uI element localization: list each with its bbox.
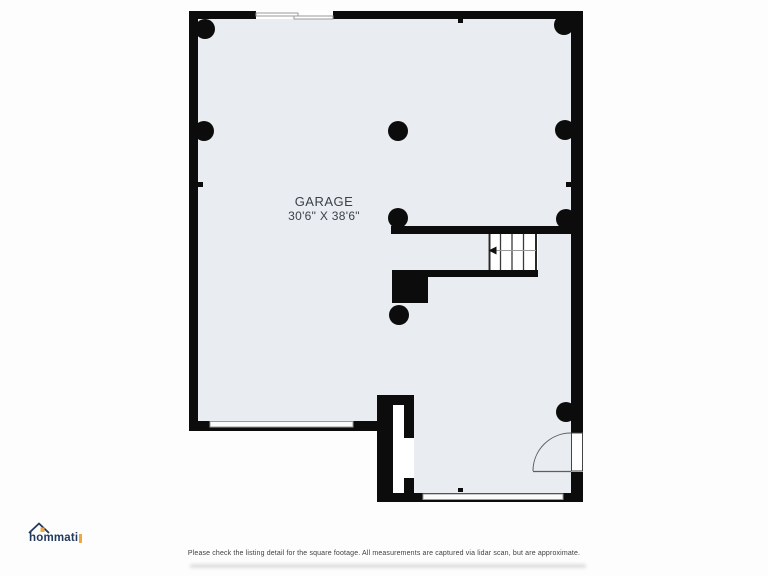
wall-segment xyxy=(189,11,198,431)
column-marker xyxy=(388,208,408,228)
top-wall-opening xyxy=(256,11,333,19)
scan-tick xyxy=(458,19,463,23)
window-marker xyxy=(294,16,333,19)
wall-segment xyxy=(189,11,256,19)
column-marker xyxy=(388,121,408,141)
staircase xyxy=(488,234,538,270)
garage-door-marker xyxy=(210,422,353,428)
column-marker xyxy=(389,305,409,325)
door-frame xyxy=(572,433,583,471)
structural-block xyxy=(392,270,428,303)
stairwell-wall xyxy=(428,270,538,277)
scan-tick xyxy=(198,182,203,187)
logo-accent-bar xyxy=(79,534,82,543)
stairwell-wall xyxy=(391,226,571,234)
column-marker xyxy=(555,120,575,140)
footer-disclaimer: Please check the listing detail for the … xyxy=(0,550,768,557)
floor-plan-page: GARAGE 30'6" X 38'6" hommati Please chec… xyxy=(0,0,768,576)
scan-tick xyxy=(566,182,571,187)
column-marker xyxy=(194,121,214,141)
logo-text: hommati xyxy=(29,533,78,544)
garage-floor xyxy=(198,19,571,421)
column-marker xyxy=(195,19,215,39)
wall-segment xyxy=(377,395,393,502)
column-marker xyxy=(556,209,576,229)
room-label: GARAGE xyxy=(295,194,354,209)
floor-plan: GARAGE 30'6" X 38'6" xyxy=(0,0,768,576)
wall-segment xyxy=(333,11,583,19)
garage-door-marker xyxy=(423,494,563,500)
scan-tick xyxy=(458,488,463,492)
wall-segment xyxy=(404,405,414,438)
wall-segment xyxy=(377,395,414,405)
hommati-logo: hommati xyxy=(28,522,86,548)
footer-smudge xyxy=(190,564,586,568)
column-marker xyxy=(554,15,574,35)
lower-room-floor xyxy=(414,421,571,493)
window-marker xyxy=(256,13,298,16)
room-dimensions: 30'6" X 38'6" xyxy=(288,209,360,223)
column-marker xyxy=(556,402,576,422)
wall-segment xyxy=(404,478,414,502)
